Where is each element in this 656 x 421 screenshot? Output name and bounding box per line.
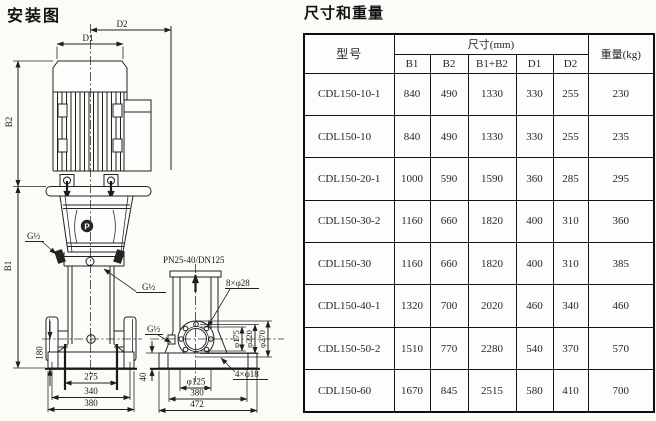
svg-text:G½: G½ [147,324,160,334]
b2-cell: 490 [430,73,468,115]
dim-label-b2: B2 [4,117,14,128]
d1-cell: 400 [516,200,553,242]
col-header-b2: B2 [430,54,468,73]
motor-stool-flange [46,187,151,197]
dim-label-dia220: φ220 [244,330,254,348]
model-cell: CDL150-60 [304,370,394,412]
col-header-model: 型号 [304,34,394,73]
thread-label-upper: G½ [25,231,56,254]
b1b2-cell: 2280 [468,327,516,369]
svg-text:G½: G½ [142,282,155,292]
b1b2-cell: 1590 [468,158,516,200]
table-row: CDL150-10-1 840 490 1330 330 255 230 [304,73,654,115]
weight-cell: 570 [588,327,654,369]
table-row: CDL150-60 1670 845 2515 580 410 700 [304,370,654,412]
b1-cell: 1000 [394,158,430,200]
dim-label-d1: D1 [83,33,94,43]
d2-cell: 285 [553,158,588,200]
weight-cell: 385 [588,243,654,285]
d2-cell: 340 [553,285,588,327]
weight-cell: 230 [588,73,654,115]
col-header-d2: D2 [553,54,588,73]
d2-cell: 410 [553,370,588,412]
col-header-weight: 重量(kg) [588,34,654,73]
d1-cell: 360 [516,158,553,200]
pump-front-view: P [45,61,151,390]
d1-cell: 460 [516,285,553,327]
svg-text:4×φ18: 4×φ18 [235,369,259,379]
pump-logo-mark: P [81,220,93,232]
d2-cell: 255 [553,115,588,157]
table-row: CDL150-40-1 1320 700 2020 460 340 460 [304,285,654,327]
b1-cell: 1320 [394,285,430,327]
b1b2-cell: 1330 [468,115,516,157]
weight-cell: 235 [588,115,654,157]
weight-cell: 360 [588,200,654,242]
motor-fan-cover [53,61,127,92]
b1b2-cell: 2515 [468,370,516,412]
d2-cell: 255 [553,73,588,115]
b2-cell: 770 [430,327,468,369]
catalog-page: 安装图 尺寸和重量 [0,0,656,421]
d1-cell: 400 [516,243,553,285]
dimensions-weight-table: 型号 尺寸(mm) 重量(kg) B1 B2 B1+B2 D1 D2 CDL15… [303,33,655,413]
dimensions-table-title: 尺寸和重量 [304,2,384,23]
dim-label-d2: D2 [117,19,128,29]
b2-cell: 660 [430,243,468,285]
b2-cell: 490 [430,115,468,157]
vent-plug [86,258,94,266]
model-cell: CDL150-30-2 [304,200,394,242]
b2-cell: 845 [430,370,468,412]
d1-cell: 330 [516,73,553,115]
table-row: CDL150-50-2 1510 770 2280 540 370 570 [304,327,654,369]
thread-label-lower: G½ [104,269,166,293]
col-header-b1b2: B1+B2 [468,54,516,73]
col-header-d1: D1 [516,54,553,73]
dim-label-380-front: 380 [84,398,98,408]
d1-cell: 580 [516,370,553,412]
svg-text:G½: G½ [27,231,40,241]
dim-label-380-side: 380 [190,388,204,398]
pump-barrel [68,266,114,344]
col-header-size-group: 尺寸(mm) [394,34,588,54]
b1-cell: 1160 [394,243,430,285]
svg-text:P: P [84,222,90,231]
d1-cell: 330 [516,115,553,157]
dim-label-180: 180 [35,346,45,360]
pump-base-front [48,352,134,368]
dim-label-340: 340 [84,386,98,396]
weight-cell: 700 [588,370,654,412]
dim-label-275: 275 [84,372,98,382]
table-row: CDL150-10 840 490 1330 330 255 235 [304,115,654,157]
dim-label-dia175: φ175 [231,330,241,348]
b1b2-cell: 1330 [468,73,516,115]
d2-cell: 370 [553,327,588,369]
b1b2-cell: 1820 [468,243,516,285]
model-cell: CDL150-10 [304,115,394,157]
gauge-boss [168,335,175,344]
b1b2-cell: 2020 [468,285,516,327]
model-cell: CDL150-30 [304,243,394,285]
b1-cell: 840 [394,115,430,157]
model-cell: CDL150-40-1 [304,285,394,327]
weight-cell: 460 [588,285,654,327]
dim-label-dia125: φ125 [187,377,206,387]
b2-cell: 660 [430,200,468,242]
weight-cell: 295 [588,158,654,200]
flange-bolt-holes-label: 8×φ28 [208,278,260,327]
model-cell: CDL150-20-1 [304,158,394,200]
table-row: CDL150-20-1 1000 590 1590 360 285 295 [304,158,654,200]
b1-cell: 840 [394,73,430,115]
b1b2-cell: 1820 [468,200,516,242]
col-header-b1: B1 [394,54,430,73]
pump-base-side [159,353,257,368]
d2-cell: 310 [553,243,588,285]
dim-label-dia270: φ270 [257,330,267,348]
table-row: CDL150-30-2 1160 660 1820 400 310 360 [304,200,654,242]
flange-spec-label: PN25-40/DN125 [163,255,225,265]
b1-cell: 1510 [394,327,430,369]
b1-cell: 1670 [394,370,430,412]
model-cell: CDL150-10-1 [304,73,394,115]
installation-drawing: P [0,0,302,421]
b1-cell: 1160 [394,200,430,242]
dim-label-b1: B1 [3,261,13,272]
d1-cell: 540 [516,327,553,369]
thread-label-side: G½ [145,324,171,343]
dim-label-472: 472 [190,399,204,409]
svg-text:8×φ28: 8×φ28 [226,278,250,288]
table-row: CDL150-30 1160 660 1820 400 310 385 [304,243,654,285]
b2-cell: 700 [430,285,468,327]
dim-label-40: 40 [138,372,148,382]
d2-cell: 310 [553,200,588,242]
b2-cell: 590 [430,158,468,200]
terminal-box [124,100,151,171]
model-cell: CDL150-50-2 [304,327,394,369]
